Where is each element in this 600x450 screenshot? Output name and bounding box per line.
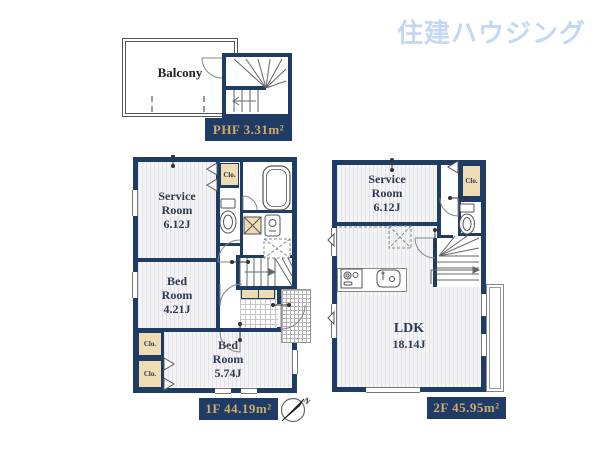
phf-stairwell	[222, 53, 292, 118]
f2-area-label: 2F 45.95m²	[427, 397, 506, 419]
balcony-railing-mark	[203, 96, 205, 112]
f1-wall	[216, 243, 243, 246]
f1-bedroom-421: Bed Room 4.21J	[138, 262, 220, 328]
phf-balcony-outline: Balcony	[122, 38, 238, 117]
f1-closet-2: Clo.	[138, 360, 164, 388]
f2-wall	[458, 202, 461, 233]
f2-closet: Clo.	[462, 165, 481, 199]
compass-north-label: N	[302, 396, 311, 407]
window	[292, 350, 298, 374]
f1-porch-tiles	[281, 289, 311, 343]
closet-label: Clo.	[144, 340, 156, 348]
room-size: 5.74J	[215, 366, 242, 381]
window	[331, 228, 337, 256]
room-label: Bed	[167, 274, 187, 288]
compass-icon: N	[279, 393, 311, 425]
f2-kitchen-counter	[337, 268, 407, 292]
phf-stairs-icon	[226, 57, 288, 114]
room-label: Room	[162, 288, 193, 302]
f1-wall	[236, 255, 240, 290]
f1-shoe-cabinet	[241, 289, 275, 299]
phf-area-label: PHF 3.31m²	[205, 118, 292, 141]
room-size: 6.12J	[164, 217, 191, 232]
shoe-cabinet-divider	[258, 290, 259, 298]
f2-wall	[437, 235, 453, 238]
f1-wall	[277, 327, 281, 332]
f2-wall	[458, 199, 481, 202]
closet-label: Clo.	[223, 171, 235, 179]
window	[215, 388, 231, 394]
room-label: Room	[372, 186, 403, 200]
room-size: 6.12J	[374, 200, 401, 215]
balcony-railing-mark	[151, 96, 153, 112]
f1-service-room: Service Room 6.12J	[138, 162, 220, 262]
f2-wall	[458, 165, 462, 202]
room-size: 18.14J	[393, 337, 426, 352]
f2-balcony	[486, 284, 504, 392]
window	[481, 294, 487, 316]
window	[481, 334, 487, 356]
closet-label: Clo.	[144, 370, 156, 378]
room-label: Bed	[218, 338, 238, 352]
room-label: Service	[368, 172, 405, 186]
f2-service-room: Service Room 6.12J	[337, 165, 441, 226]
room-label: LDK	[394, 321, 424, 337]
f1-wall	[238, 255, 297, 258]
f2-wall	[458, 233, 481, 236]
f1-bedroom-574: Bed Room 5.74J	[164, 332, 292, 387]
room-label: Room	[162, 203, 193, 217]
f1-wall	[277, 289, 281, 304]
f2-balcony-inner-line	[489, 287, 501, 389]
f1-area-label: 1F 44.19m²	[199, 398, 278, 420]
f1-wall	[243, 210, 297, 213]
window	[132, 272, 138, 298]
closet-label: Clo.	[465, 177, 477, 185]
f1-closet-1: Clo.	[138, 332, 164, 356]
floorplan-page: 住建ハウジング Balcony PHF 3.31m²	[0, 0, 600, 450]
room-label: Service	[158, 189, 195, 203]
room-label: Room	[213, 352, 244, 366]
brand-logo: 住建ハウジング	[390, 13, 586, 45]
f2-wall	[433, 238, 437, 287]
window	[241, 388, 257, 394]
f1-closet-top: Clo.	[220, 163, 239, 188]
window	[132, 190, 138, 216]
phf-balcony-label: Balcony	[123, 65, 237, 81]
window	[331, 304, 337, 338]
window	[366, 387, 420, 393]
room-size: 4.21J	[164, 302, 191, 317]
